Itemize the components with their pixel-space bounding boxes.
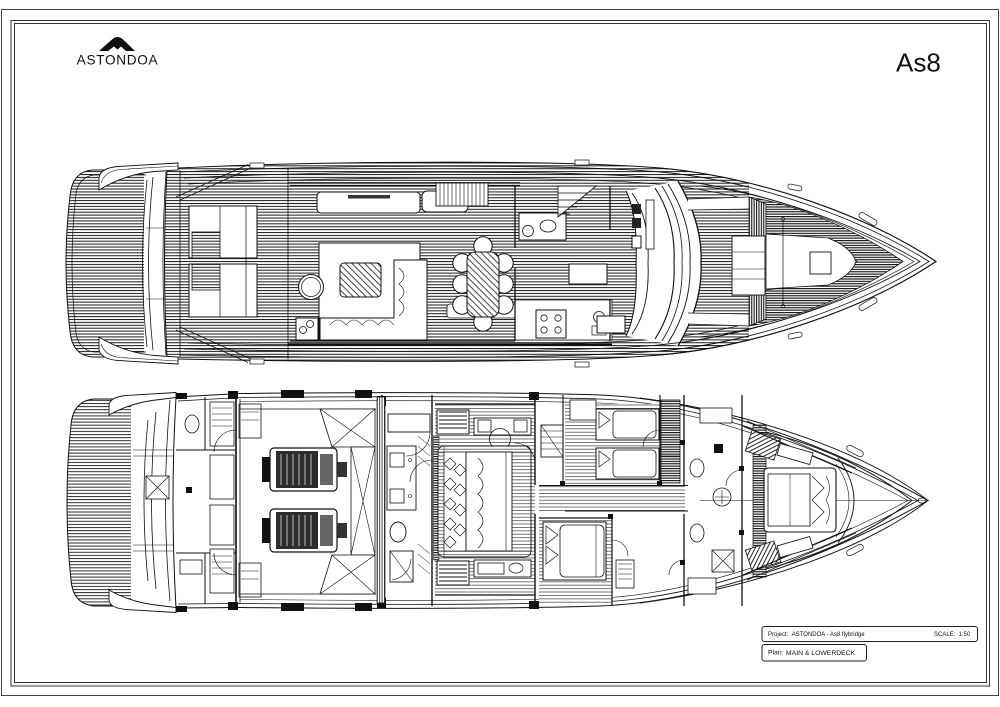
svg-text:ASTONDOA: ASTONDOA [77,53,159,68]
svg-text:Plan:: Plan: [768,650,784,657]
svg-text:Project: ASTONDOA - As8 flybr: Project: ASTONDOA - As8 flybridge [768,632,865,638]
svg-text:As8: As8 [896,48,941,78]
svg-text:SCALE: 1:50: SCALE: 1:50 [934,632,971,638]
svg-text:MAIN & LOWERDECK: MAIN & LOWERDECK [786,650,856,657]
